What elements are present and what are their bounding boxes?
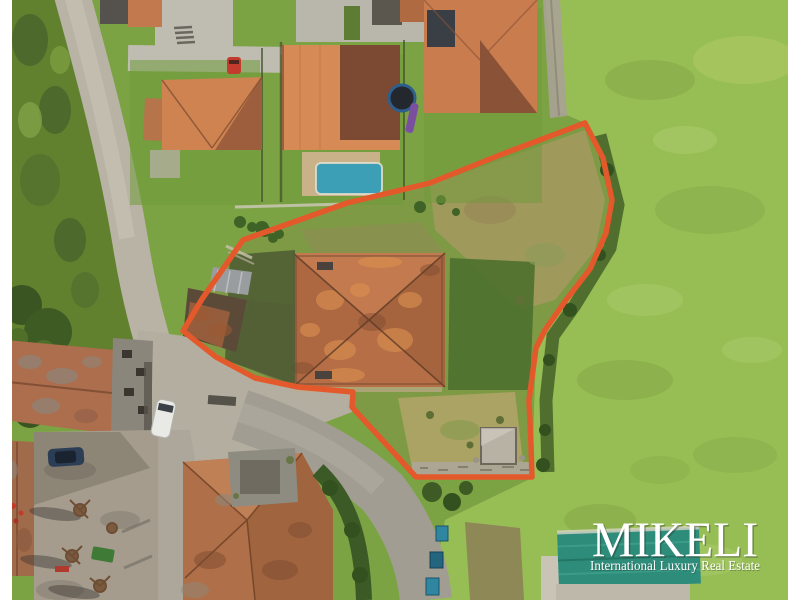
red-bench bbox=[55, 566, 69, 572]
central-house bbox=[290, 253, 445, 392]
watermark-tagline: International Luxury Real Estate bbox=[590, 558, 760, 573]
frame-left bbox=[0, 0, 12, 600]
watermark: MIKELI MIKELI International Luxury Real … bbox=[590, 511, 761, 574]
chimney bbox=[317, 262, 333, 270]
courtyard bbox=[19, 430, 158, 600]
frame-right bbox=[788, 0, 800, 600]
house-right bbox=[424, 0, 537, 113]
dark-car bbox=[47, 447, 84, 467]
red-car bbox=[227, 57, 241, 74]
aerial-photo: MIKELI MIKELI International Luxury Real … bbox=[0, 0, 800, 600]
swimming-pool bbox=[316, 163, 382, 194]
chimney bbox=[315, 371, 332, 379]
